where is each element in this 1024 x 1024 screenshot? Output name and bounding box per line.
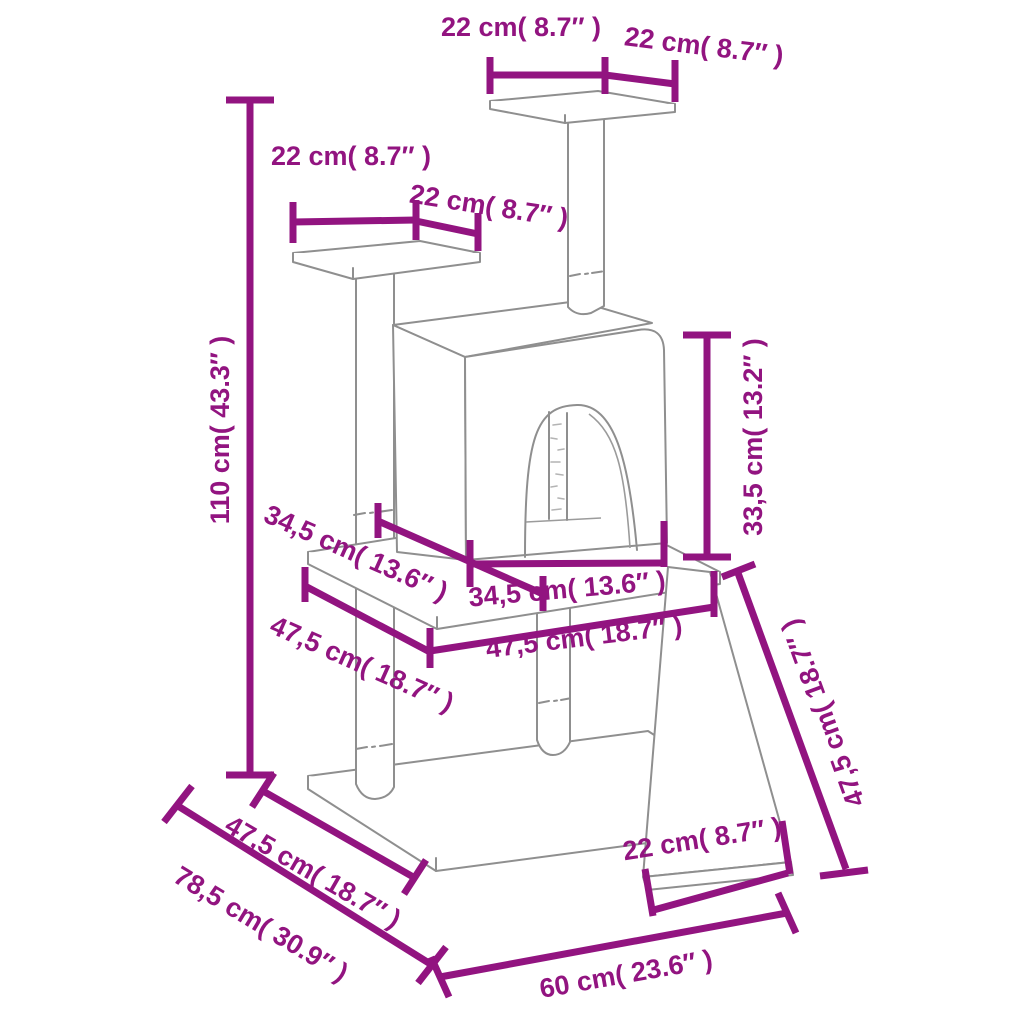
dimension-label-condo-height: 33,5 cm( 13.2″ ) [738,338,768,536]
dimension-label-left-platform-width: 22 cm( 8.7″ ) [271,141,431,171]
top-scratching-post [568,117,604,314]
dimension-label-total-height: 110 cm( 43.3″ ) [205,336,235,525]
dimension-line [605,75,675,84]
cat-tree-dimension-diagram: 22 cm( 8.7″ )22 cm( 8.7″ )22 cm( 8.7″ )2… [0,0,1024,1024]
dimension-line [470,563,664,564]
top-platform [490,91,675,123]
dimension-tick [820,870,868,876]
dimension-line [416,221,478,234]
dimension-line [293,220,416,222]
left-platform [293,241,480,279]
dimension-label-top-platform-depth: 22 cm( 8.7″ ) [623,21,785,70]
dimension-label-top-platform-width: 22 cm( 8.7″ ) [441,12,601,42]
left-scratching-post [354,272,394,799]
dimension-tick [164,786,192,822]
condo-house [393,301,667,560]
diagram-canvas: 22 cm( 8.7″ )22 cm( 8.7″ )22 cm( 8.7″ )2… [0,0,1024,1024]
dimension-label-middle-board-width: 47,5 cm( 18.7″ ) [484,610,684,664]
